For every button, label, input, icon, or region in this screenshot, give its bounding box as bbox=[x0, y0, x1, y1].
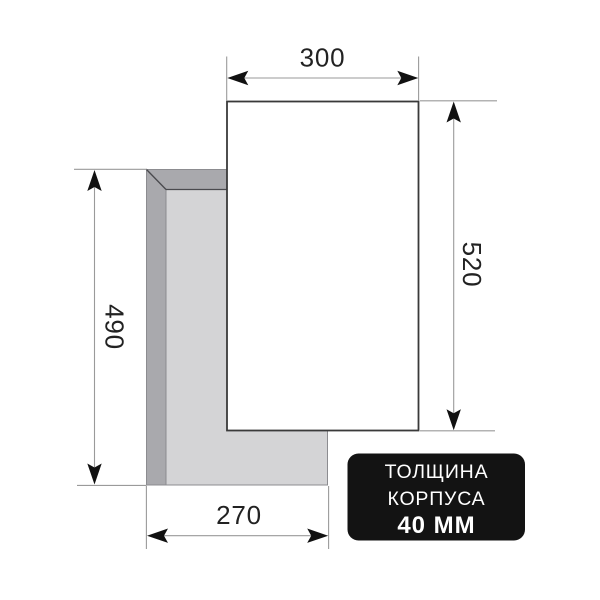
svg-text:520: 520 bbox=[457, 242, 487, 288]
svg-text:40 ММ: 40 ММ bbox=[397, 512, 475, 539]
svg-text:КОРПУСА: КОРПУСА bbox=[388, 488, 486, 510]
svg-text:300: 300 bbox=[300, 43, 346, 73]
svg-text:270: 270 bbox=[216, 500, 262, 530]
svg-text:490: 490 bbox=[100, 304, 130, 350]
svg-text:ТОЛЩИНА: ТОЛЩИНА bbox=[385, 461, 489, 483]
